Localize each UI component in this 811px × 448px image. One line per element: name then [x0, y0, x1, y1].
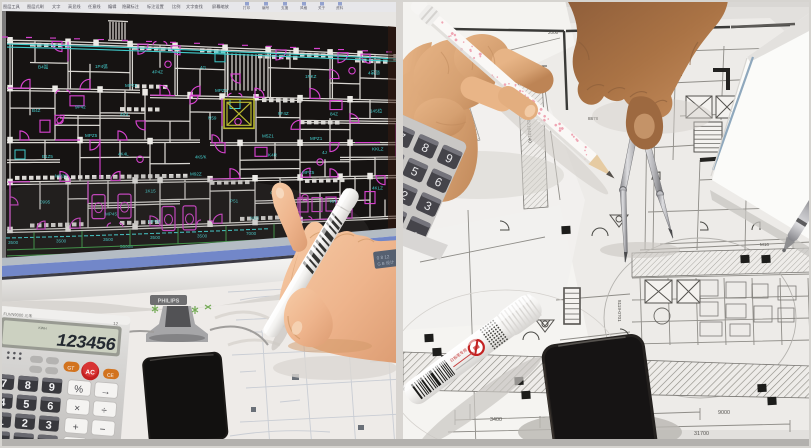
svg-text:文字: 文字	[52, 3, 60, 10]
svg-text:3400: 3400	[490, 417, 502, 423]
svg-text:+: +	[72, 422, 79, 433]
svg-text:6: 6	[47, 400, 54, 412]
svg-text:MPZ1: MPZ1	[215, 88, 228, 93]
svg-text:9P42: 9P42	[75, 105, 86, 110]
svg-text:4K4L: 4K4L	[118, 152, 129, 157]
svg-text:KWH: KWH	[38, 326, 47, 331]
svg-text:31700: 31700	[694, 431, 709, 437]
svg-text:PHILIPS: PHILIPS	[158, 299, 180, 305]
svg-text:%: %	[74, 384, 84, 396]
svg-text:2: 2	[21, 417, 28, 429]
svg-text:高显线: 高显线	[68, 3, 81, 10]
svg-text:MPZ5: MPZ5	[302, 170, 315, 175]
svg-text:M92Z: M92Z	[190, 172, 202, 177]
svg-text:145位: 145位	[370, 108, 383, 114]
svg-text:B4弧: B4弧	[38, 64, 49, 71]
svg-text:8119-0701: 8119-0701	[617, 300, 622, 322]
svg-text:3: 3	[45, 419, 52, 431]
svg-text:图层式刷: 图层式刷	[27, 3, 44, 10]
svg-text:−: −	[99, 424, 106, 435]
svg-text:编号: 编号	[262, 5, 270, 10]
svg-text:风格: 风格	[300, 5, 308, 10]
svg-text:GT: GT	[67, 365, 74, 372]
svg-text:4P4Z: 4P4Z	[152, 69, 163, 74]
svg-text:4R4: 4R4	[120, 112, 129, 117]
svg-text:KKLZ: KKLZ	[372, 146, 384, 151]
svg-text:4KLZ: 4KLZ	[372, 186, 383, 191]
svg-text:1P4弧: 1P4弧	[95, 63, 108, 70]
svg-text:M16: M16	[760, 242, 769, 247]
svg-text:MP25: MP25	[55, 174, 67, 179]
svg-text:MPZ5: MPZ5	[85, 133, 98, 138]
svg-text:资料: 资料	[336, 5, 344, 10]
svg-text:CE: CE	[107, 373, 115, 380]
svg-text:隐藏标注: 隐藏标注	[122, 3, 140, 10]
svg-text:9: 9	[48, 382, 55, 394]
svg-text:12: 12	[113, 321, 119, 326]
svg-text:编辑: 编辑	[108, 3, 116, 10]
svg-text:标注设置: 标注设置	[147, 3, 164, 10]
svg-text:比例: 比例	[172, 3, 180, 10]
svg-text:M5Z1: M5Z1	[262, 133, 274, 138]
svg-text:×: ×	[74, 403, 81, 414]
svg-text:MPZ1: MPZ1	[310, 136, 323, 141]
svg-text:N59: N59	[208, 116, 217, 121]
svg-text:屏幕缩放: 屏幕缩放	[212, 3, 230, 10]
svg-text:8: 8	[24, 380, 31, 392]
svg-text:K4R: K4R	[268, 152, 278, 157]
svg-text:关于: 关于	[318, 5, 326, 10]
svg-text:→: →	[100, 386, 111, 398]
svg-text:MPZ5: MPZ5	[125, 83, 138, 88]
svg-text:B4Z: B4Z	[32, 108, 41, 113]
svg-text:4G: 4G	[200, 65, 207, 70]
svg-text:9F4Z: 9F4Z	[278, 111, 289, 116]
svg-text:打印: 打印	[243, 5, 251, 10]
svg-text:AC: AC	[85, 369, 95, 377]
svg-text:文字查找: 文字查找	[186, 3, 204, 10]
svg-text:5: 5	[23, 399, 30, 411]
svg-text:9000: 9000	[718, 410, 730, 416]
svg-text:任意线: 任意线	[88, 3, 101, 10]
svg-text:B1Z5: B1Z5	[42, 154, 53, 159]
svg-text:1PKZ: 1PKZ	[305, 74, 317, 79]
svg-text:84Z: 84Z	[330, 112, 338, 117]
svg-text:4K5/K: 4K5/K	[195, 155, 207, 160]
svg-text:2000: 2000	[548, 30, 559, 35]
svg-text:支援: 支援	[281, 5, 289, 10]
svg-text:4J: 4J	[322, 150, 327, 155]
